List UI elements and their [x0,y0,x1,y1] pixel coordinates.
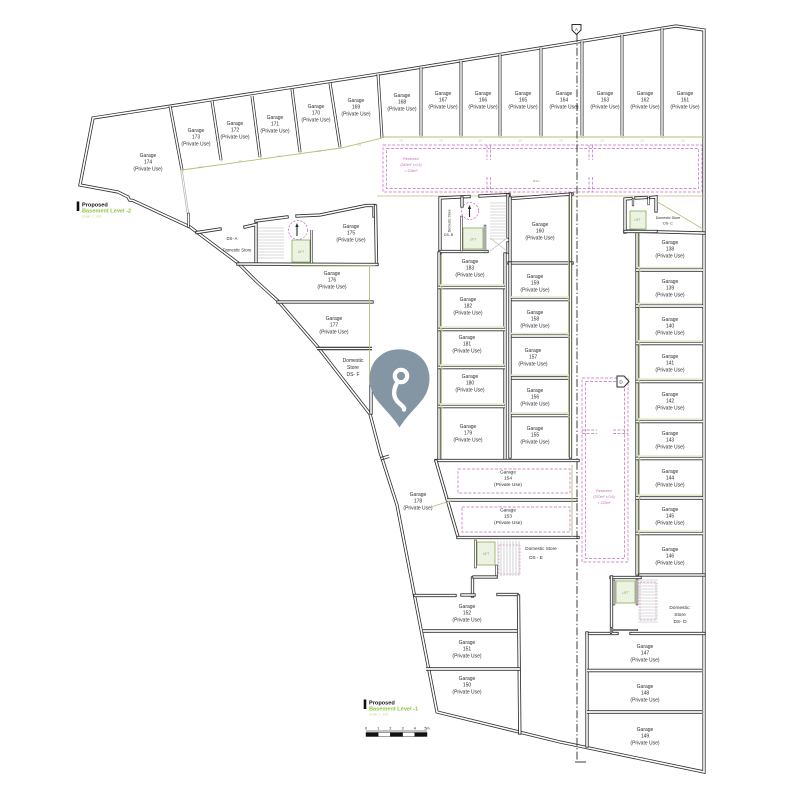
svg-text:148: 148 [641,691,650,697]
svg-text:(Private Use): (Private Use) [655,254,685,260]
svg-text:151: 151 [463,647,472,653]
svg-text:170: 170 [312,111,321,117]
svg-text:Garage: Garage [460,297,477,303]
svg-text:Domestic Store: Domestic Store [448,209,452,232]
svg-text:Garage: Garage [556,91,573,97]
svg-text:Garage: Garage [637,91,654,97]
svg-text:(Private Use): (Private Use) [455,273,485,279]
svg-text:(Private Use): (Private Use) [655,521,685,527]
svg-text:173: 173 [192,135,201,141]
svg-text:Garage: Garage [308,104,325,110]
svg-text:159: 159 [531,281,540,287]
svg-text:(Private Use): (Private Use) [452,654,482,660]
svg-text:167: 167 [439,98,448,104]
svg-text:Garage: Garage [662,392,679,398]
svg-text:Garage: Garage [343,224,360,230]
svg-text:172: 172 [231,128,240,134]
svg-text:171: 171 [271,122,280,128]
svg-text:149: 149 [641,734,650,740]
svg-text:(370m² x 0.6): (370m² x 0.6) [593,495,614,499]
svg-text:(Private Use): (Private Use) [133,167,163,173]
svg-text:168: 168 [398,100,407,106]
svg-text:Garage: Garage [394,93,411,99]
svg-text:1: 1 [377,727,379,731]
svg-text:Garage: Garage [459,335,476,341]
svg-text:Garage: Garage [662,354,679,360]
svg-text:(Private Use): (Private Use) [336,238,366,244]
svg-text:Garage: Garage [460,424,477,430]
svg-text:DS- C: DS- C [663,222,673,226]
svg-text:(Private Use): (Private Use) [452,349,482,355]
svg-text:Garage: Garage [475,91,492,97]
svg-text:Garage: Garage [140,153,157,159]
svg-text:(Private Use): (Private Use) [655,406,685,412]
svg-text:= 222m²: = 222m² [597,501,611,505]
svg-text:163: 163 [601,98,610,104]
svg-text:143: 143 [666,438,675,444]
svg-text:Domestic Store: Domestic Store [525,546,557,551]
svg-text:0: 0 [365,727,367,731]
svg-text:Garage: Garage [435,91,452,97]
svg-text:Garage: Garage [677,91,694,97]
svg-text:160: 160 [536,229,545,235]
svg-text:(Private Use): (Private Use) [301,118,331,124]
svg-text:179: 179 [464,431,473,437]
svg-text:LIFT: LIFT [298,250,305,254]
svg-text:178: 178 [414,499,423,505]
svg-text:DS - E: DS - E [529,555,543,560]
svg-text:(Private Use): (Private Use) [319,330,349,336]
svg-text:(Private Use): (Private Use) [655,293,685,299]
svg-text:156: 156 [531,395,540,401]
svg-text:DS- A: DS- A [227,236,238,241]
svg-text:(Private Use): (Private Use) [220,135,250,141]
svg-text:(Private Use): (Private Use) [655,445,685,451]
svg-text:162: 162 [641,98,650,104]
svg-text:Garage: Garage [267,115,284,121]
svg-text:Garage: Garage [662,279,679,285]
svg-text:(Private Use): (Private Use) [452,690,482,696]
svg-text:(Private Use): (Private Use) [260,129,290,135]
svg-text:139: 139 [666,286,675,292]
svg-text:183: 183 [466,266,475,272]
svg-text:(Private Use): (Private Use) [655,368,685,374]
svg-text:Garage: Garage [525,348,542,354]
svg-text:177: 177 [330,323,339,329]
svg-text:18.9m: 18.9m [532,179,539,183]
svg-text:140: 140 [666,324,675,330]
svg-text:(340m² x 0.6): (340m² x 0.6) [400,163,421,167]
svg-text:Garage: Garage [515,91,532,97]
svg-text:138: 138 [666,247,675,253]
svg-text:scale 1 :100: scale 1 :100 [369,713,388,717]
svg-text:A: A [575,27,578,32]
svg-text:(Private Use): (Private Use) [455,388,485,394]
svg-text:182: 182 [464,304,473,310]
svg-text:147: 147 [641,651,650,657]
svg-text:Garage: Garage [597,91,614,97]
svg-text:175: 175 [347,231,356,237]
svg-text:Garage: Garage [662,240,679,246]
svg-text:(Private Use): (Private Use) [630,698,660,704]
svg-text:Store: Store [674,612,686,618]
svg-text:152: 152 [463,611,472,617]
svg-text:Garage: Garage [348,98,365,104]
svg-text:LIFT: LIFT [634,218,641,222]
svg-text:(Private Use): (Private Use) [428,105,458,111]
svg-text:DS- B: DS- B [444,233,454,237]
svg-text:Reserved: Reserved [403,157,418,161]
svg-text:Garage: Garage [462,374,479,380]
svg-text:157: 157 [529,355,538,361]
svg-text:Garage: Garage [637,684,654,690]
svg-text:Garage: Garage [527,274,544,280]
svg-text:scale 1 :100: scale 1 :100 [82,215,101,219]
svg-text:Garage: Garage [500,507,516,513]
svg-text:164: 164 [560,98,569,104]
svg-text:DS- D: DS- D [673,619,687,625]
svg-text:(Private Use): (Private Use) [518,362,548,368]
svg-text:(Private Use): (Private Use) [452,618,482,624]
svg-text:(Private Use): (Private Use) [387,107,417,113]
svg-text:(Private Use): (Private Use) [317,285,347,291]
svg-text:Garage: Garage [662,469,679,475]
svg-text:(Private Use): (Private Use) [520,288,550,294]
svg-text:Garage: Garage [662,431,679,437]
svg-text:5m: 5m [425,727,430,731]
svg-text:146: 146 [666,554,675,560]
svg-text:Garage: Garage [532,222,549,228]
svg-text:= 204m²: = 204m² [404,169,418,173]
svg-text:(Private Use): (Private Use) [468,105,498,111]
svg-text:4: 4 [414,727,416,731]
svg-text:142: 142 [666,399,675,405]
svg-text:Garage: Garage [662,507,679,513]
svg-text:Store: Store [347,365,359,371]
svg-text:(Private Use): (Private Use) [655,483,685,489]
svg-text:(Private Use): (Private Use) [520,324,550,330]
svg-text:(Private Use): (Private Use) [494,520,522,526]
svg-text:(Private Use): (Private Use) [655,331,685,337]
svg-text:Proposed: Proposed [369,701,395,707]
svg-text:Garage: Garage [462,259,479,265]
svg-text:Garage: Garage [459,676,476,682]
svg-text:(Private Use): (Private Use) [670,105,700,111]
svg-text:181: 181 [463,342,472,348]
svg-text:Garage: Garage [324,271,341,277]
svg-text:165: 165 [519,98,528,104]
svg-text:(Private Use): (Private Use) [520,402,550,408]
svg-text:Garage: Garage [637,727,654,733]
svg-text:Garage: Garage [527,310,544,316]
svg-text:(Private Use): (Private Use) [630,658,660,664]
svg-text:166: 166 [479,98,488,104]
svg-text:(Private Use): (Private Use) [494,482,522,488]
svg-text:Garage: Garage [459,604,476,610]
svg-text:(Private Use): (Private Use) [508,105,538,111]
svg-text:Domestic: Domestic [343,358,364,364]
svg-text:154: 154 [504,476,512,482]
svg-text:(Private Use): (Private Use) [549,105,579,111]
svg-text:(Private Use): (Private Use) [453,311,483,317]
svg-text:Domestic:: Domestic: [669,605,690,611]
svg-text:(Private Use): (Private Use) [341,112,371,118]
svg-text:Domestic Store: Domestic Store [656,216,681,220]
svg-text:Garage: Garage [662,317,679,323]
svg-text:158: 158 [531,317,540,323]
svg-text:180: 180 [466,381,475,387]
svg-text:DS- F: DS- F [346,372,359,378]
svg-text:(Private Use): (Private Use) [403,506,433,512]
svg-text:Garage: Garage [410,492,427,498]
svg-text:LIFT: LIFT [622,591,629,595]
svg-text:(Private Use): (Private Use) [525,236,555,242]
svg-text:Garage: Garage [527,388,544,394]
svg-text:2: 2 [389,727,391,731]
svg-text:(Private Use): (Private Use) [630,741,660,747]
svg-text:Garage: Garage [227,121,244,127]
svg-text:(Private Use): (Private Use) [590,105,620,111]
svg-text:Garage: Garage [188,128,205,134]
svg-text:Garage: Garage [527,426,544,432]
svg-text:LIFT: LIFT [470,238,477,242]
svg-text:144: 144 [666,476,675,482]
svg-text:145: 145 [666,514,675,520]
svg-text:Garage: Garage [500,469,516,475]
svg-text:Garage: Garage [662,547,679,553]
svg-text:150: 150 [463,683,472,689]
svg-text:Garage: Garage [326,316,343,322]
svg-text:169: 169 [352,105,361,111]
svg-text:153: 153 [504,514,512,520]
svg-text:(Private Use): (Private Use) [453,438,483,444]
svg-text:Domestic Store: Domestic Store [223,248,252,253]
svg-text:3: 3 [402,727,404,731]
svg-text:(Private Use): (Private Use) [520,440,550,446]
svg-text:LIFT: LIFT [483,552,490,556]
svg-text:176: 176 [328,278,337,284]
svg-text:Garage: Garage [637,644,654,650]
svg-text:174: 174 [144,160,153,166]
svg-text:155: 155 [531,433,540,439]
svg-text:161: 161 [681,98,690,104]
svg-text:141: 141 [666,361,675,367]
svg-text:Garage: Garage [459,640,476,646]
svg-text:(Private Use): (Private Use) [181,142,211,148]
svg-text:(Private Use): (Private Use) [630,105,660,111]
svg-text:Proposed: Proposed [82,203,108,209]
svg-text:(Private Use): (Private Use) [655,561,685,567]
svg-text:Reserved: Reserved [596,489,611,493]
